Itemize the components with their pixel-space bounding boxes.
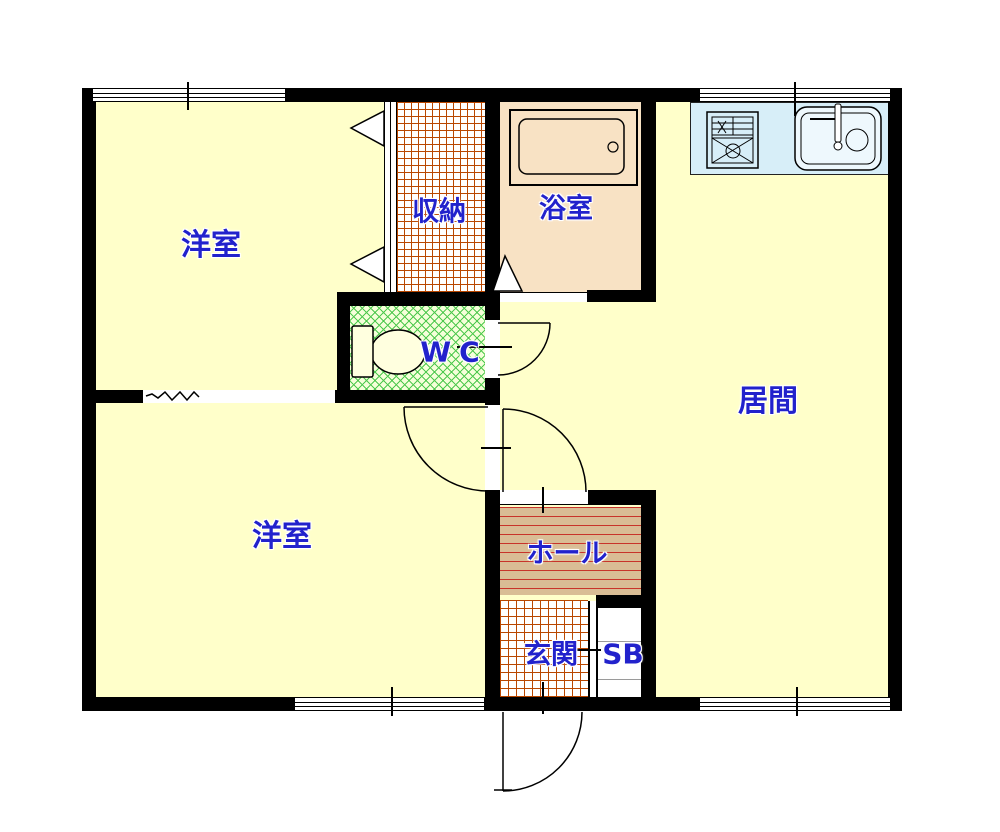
wall-wc-left <box>337 292 350 403</box>
room-label-wc: WC <box>420 336 487 369</box>
room-label-entrance: 玄関 <box>524 633 578 672</box>
room-label-hall: ホール <box>527 532 608 571</box>
wall-center-stub-upper <box>485 302 500 320</box>
window-living <box>700 697 890 711</box>
room-label-storage: 収納 <box>412 190 466 229</box>
wall-shoebox-top <box>596 595 641 608</box>
wall-storage-bath <box>485 102 500 302</box>
floor-plan: 洋室 収納 浴室 居間 WC 洋室 ホール 玄関 SB <box>0 0 1000 832</box>
kitchen-counter <box>690 102 890 175</box>
hall-doorway <box>500 490 588 505</box>
room-label-bathroom: 浴室 <box>539 187 593 226</box>
wall-bedroom-divider <box>82 390 143 403</box>
wall-entrance-left <box>485 505 500 697</box>
bedroom-doorway <box>485 405 500 490</box>
storage-door-track <box>384 102 397 292</box>
room-label-living: 居間 <box>738 376 798 420</box>
entrance-sb-divider <box>588 601 598 697</box>
room-label-bedroom-top: 洋室 <box>181 220 241 264</box>
window-bottom-left <box>295 697 484 711</box>
wall-bath-right <box>641 102 656 302</box>
room-label-bedroom-bottom: 洋室 <box>252 511 312 555</box>
window-kitchen <box>700 88 890 102</box>
room-label-shoebox: SB <box>602 638 644 671</box>
wall-bath-bottom <box>587 290 656 302</box>
entrance-door-arc <box>503 712 582 791</box>
wall-hall-top-left <box>485 490 500 505</box>
wall-outer-right <box>888 88 902 711</box>
bath-sliding-doorway <box>493 292 587 302</box>
wall-wc-bottom <box>335 390 500 403</box>
bedroom-partition-opening <box>143 390 335 403</box>
wall-wc-top <box>337 292 500 306</box>
window-top-left <box>93 88 285 102</box>
